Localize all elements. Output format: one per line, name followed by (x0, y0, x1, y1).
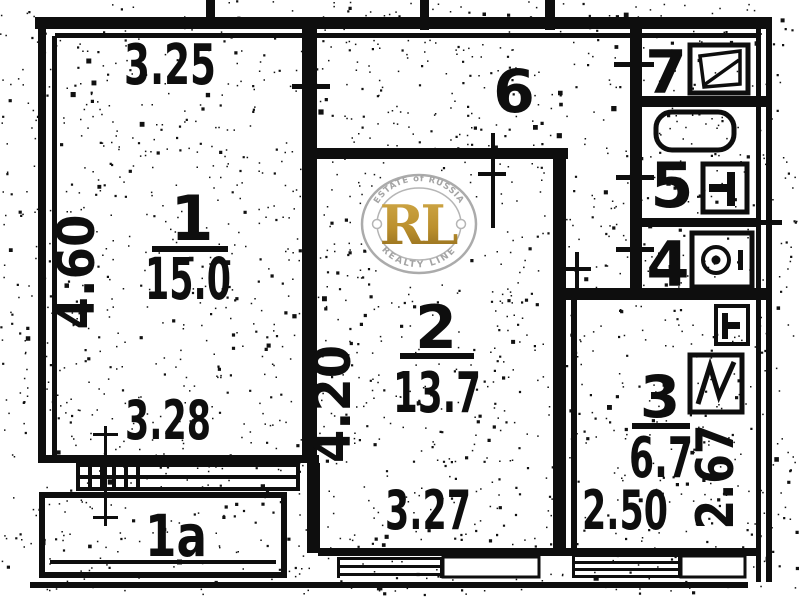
room6-number: 6 (493, 57, 535, 127)
room1-area: 15.0 (145, 245, 231, 313)
vent-duct-icon (703, 164, 747, 212)
stamp-right-dot (457, 220, 466, 229)
floor-plan-drawing: 3.25 4.60 3.28 4.20 3.27 2.50 2.67 1 15.… (0, 0, 800, 600)
room4-number: 4 (646, 228, 689, 301)
room3-area: 6.7 (629, 426, 693, 491)
balcony-door-leaf (443, 557, 539, 577)
room3-number: 3 (640, 363, 680, 431)
dim-room1-bottom: 3.28 (125, 389, 211, 452)
dim-room1-top: 3.25 (124, 33, 216, 98)
room1a-number: 1a (145, 502, 207, 570)
room2-area: 13.7 (393, 361, 481, 426)
room2-number: 2 (415, 293, 457, 363)
floor-plan-scan: 3.25 4.60 3.28 4.20 3.27 2.50 2.67 1 15.… (0, 0, 800, 600)
dim-room1-left: 4.60 (47, 215, 107, 330)
dim-room2-left: 4.20 (303, 345, 363, 463)
washing-machine-icon (692, 233, 752, 287)
sink-icon (690, 45, 748, 93)
kitchen-vent-duct-icon (716, 306, 748, 344)
room5-number: 5 (650, 149, 693, 222)
watermark-stamp: ESTATE of RUSSIA REALTY LINE RL (358, 171, 480, 277)
stamp-initials: RL (380, 193, 458, 257)
room2-fraction-line (400, 353, 474, 359)
room7-number: 7 (645, 38, 687, 108)
dim-room2-bottom: 3.27 (385, 479, 471, 542)
kitchen-door-leaf (681, 556, 745, 577)
dim-room3-right: 2.67 (686, 425, 746, 530)
